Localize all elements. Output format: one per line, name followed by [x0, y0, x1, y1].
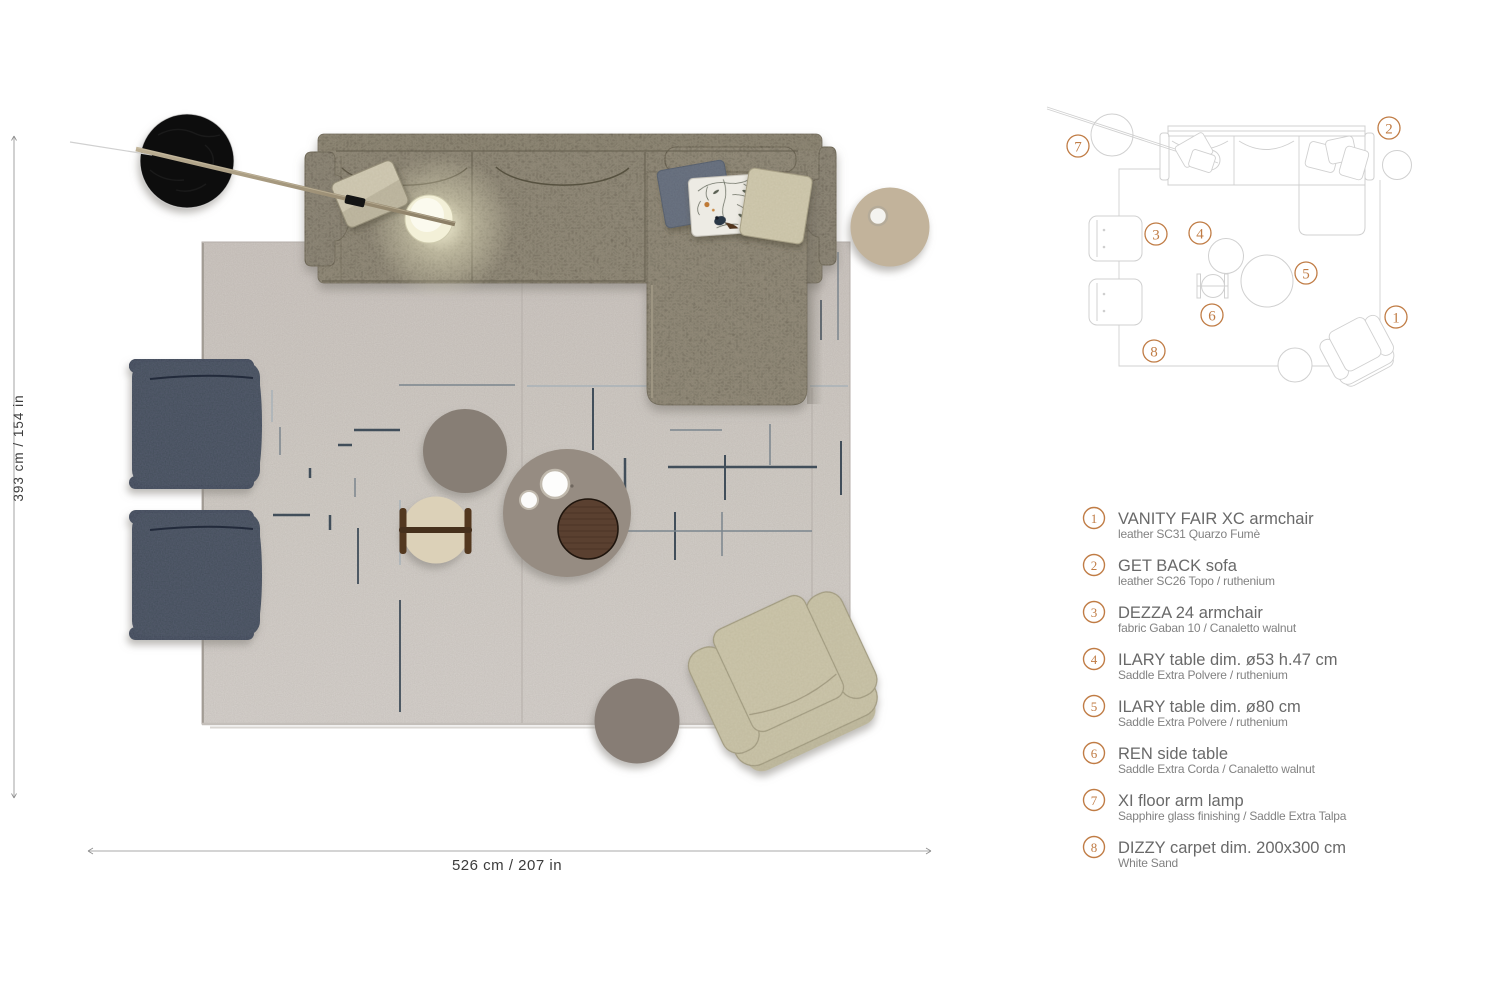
svg-text:5: 5	[1091, 699, 1098, 714]
svg-text:7: 7	[1091, 793, 1098, 808]
svg-text:8: 8	[1150, 345, 1158, 361]
svg-text:1: 1	[1392, 311, 1400, 327]
svg-text:526 cm / 207 in: 526 cm / 207 in	[452, 857, 562, 874]
svg-text:5: 5	[1302, 267, 1310, 283]
svg-text:ILARY table dim. ø53 h.47 cm: ILARY table dim. ø53 h.47 cm	[1118, 651, 1338, 669]
svg-text:ILARY table dim. ø80 cm: ILARY table dim. ø80 cm	[1118, 698, 1301, 716]
svg-text:REN side table: REN side table	[1118, 745, 1228, 763]
svg-text:4: 4	[1091, 652, 1098, 667]
svg-text:Saddle Extra Polvere / rutheni: Saddle Extra Polvere / ruthenium	[1118, 668, 1288, 682]
svg-text:2: 2	[1385, 122, 1393, 138]
svg-text:8: 8	[1091, 840, 1098, 855]
svg-text:leather SC31 Quarzo Fumè: leather SC31 Quarzo Fumè	[1118, 527, 1260, 541]
svg-text:6: 6	[1091, 746, 1098, 761]
svg-text:Saddle Extra Corda / Canaletto: Saddle Extra Corda / Canaletto walnut	[1118, 762, 1316, 776]
svg-text:7: 7	[1074, 140, 1082, 156]
svg-text:Saddle Extra Polvere / rutheni: Saddle Extra Polvere / ruthenium	[1118, 715, 1288, 729]
svg-text:6: 6	[1208, 309, 1216, 325]
svg-text:GET BACK sofa: GET BACK sofa	[1118, 557, 1238, 575]
svg-text:VANITY FAIR XC armchair: VANITY FAIR XC armchair	[1118, 510, 1314, 528]
svg-text:XI floor arm lamp: XI floor arm lamp	[1118, 792, 1244, 810]
svg-text:3: 3	[1091, 605, 1098, 620]
svg-text:leather SC26 Topo / ruthenium: leather SC26 Topo / ruthenium	[1118, 574, 1275, 588]
svg-text:DIZZY carpet dim. 200x300 cm: DIZZY carpet dim. 200x300 cm	[1118, 839, 1346, 857]
svg-text:fabric Gaban 10 / Canaletto wa: fabric Gaban 10 / Canaletto walnut	[1118, 621, 1297, 635]
svg-text:2: 2	[1091, 558, 1098, 573]
svg-text:393 cm / 154 in: 393 cm / 154 in	[11, 394, 26, 501]
svg-text:DEZZA 24 armchair: DEZZA 24 armchair	[1118, 604, 1263, 622]
svg-text:Sapphire glass finishing / Sad: Sapphire glass finishing / Saddle Extra …	[1118, 809, 1347, 823]
svg-text:4: 4	[1196, 227, 1204, 243]
svg-text:3: 3	[1152, 228, 1160, 244]
svg-text:White Sand: White Sand	[1118, 856, 1178, 870]
svg-text:1: 1	[1091, 511, 1098, 526]
